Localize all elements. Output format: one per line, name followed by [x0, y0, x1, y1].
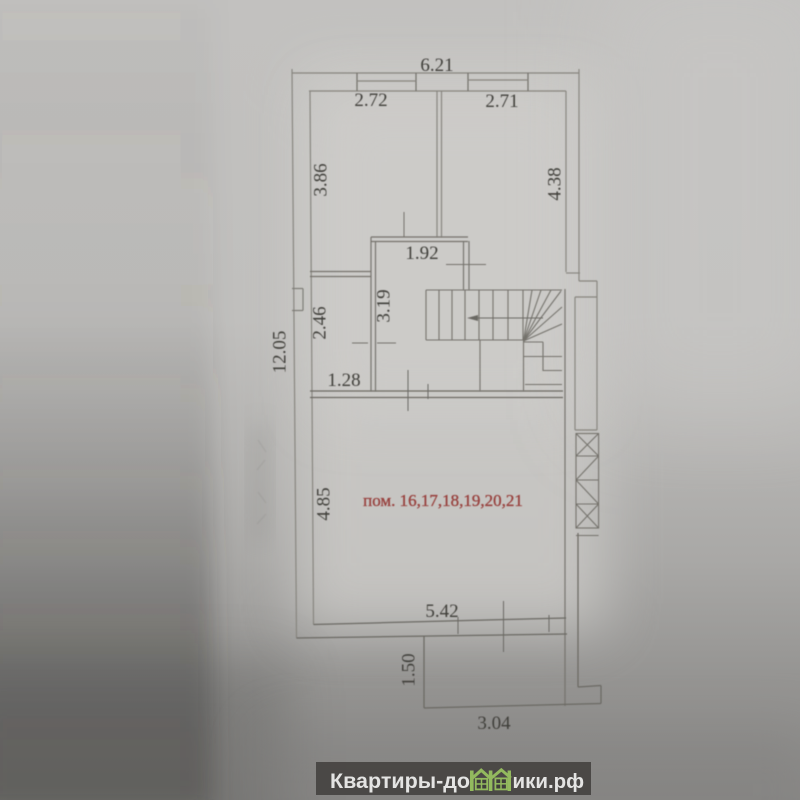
svg-text:12.05: 12.05: [269, 331, 290, 374]
svg-text:Квартиры-до: Квартиры-до: [330, 769, 470, 793]
svg-text:пом. 16,17,18,19,20,21: пом. 16,17,18,19,20,21: [363, 491, 523, 510]
svg-text:4.85: 4.85: [313, 487, 334, 520]
svg-text:5.42: 5.42: [425, 601, 458, 622]
svg-text:1.92: 1.92: [405, 243, 438, 264]
svg-text:2.71: 2.71: [485, 91, 518, 112]
svg-text:ики.рф: ики.рф: [513, 770, 585, 793]
svg-text:4.38: 4.38: [544, 167, 565, 200]
svg-text:3.19: 3.19: [373, 289, 394, 322]
svg-text:1.50: 1.50: [398, 653, 419, 686]
svg-text:2.72: 2.72: [354, 90, 387, 111]
svg-text:3.86: 3.86: [310, 163, 331, 196]
svg-text:6.21: 6.21: [420, 55, 453, 76]
svg-text:1.28: 1.28: [327, 370, 360, 391]
svg-text:3.04: 3.04: [477, 713, 511, 734]
svg-text:2.46: 2.46: [309, 306, 330, 339]
